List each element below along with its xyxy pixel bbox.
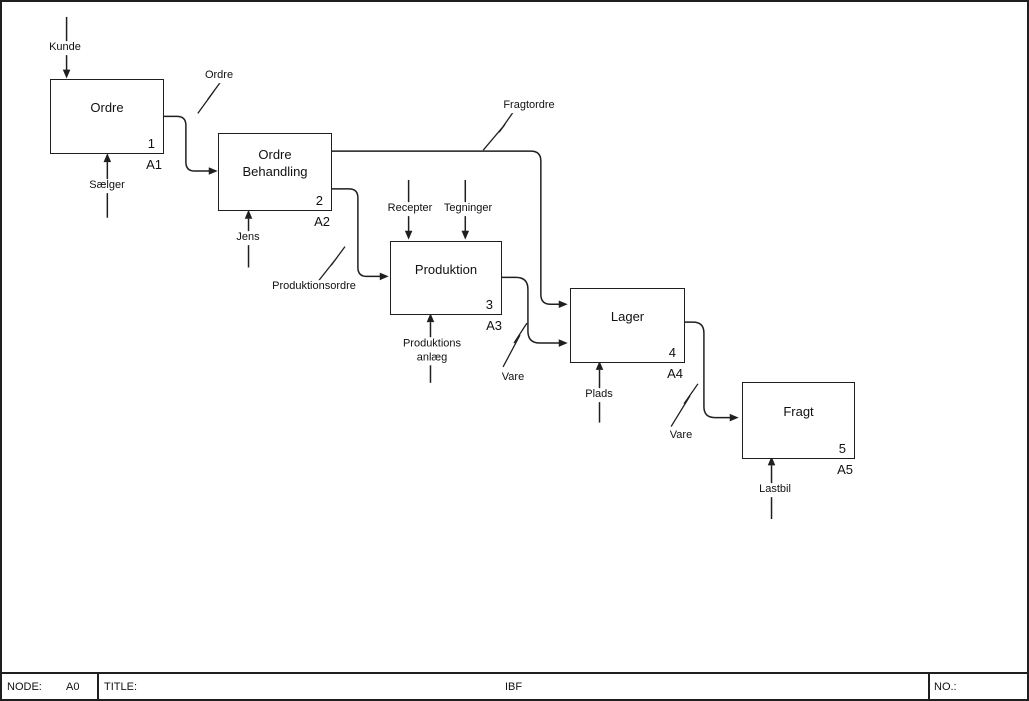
activity-label: Fragt: [783, 404, 813, 421]
activity-label: Ordre: [90, 100, 123, 117]
activity-code-a1: A1: [120, 157, 162, 172]
title-value: IBF: [505, 681, 522, 693]
node-value: A0: [66, 681, 79, 693]
node-label: NODE:: [7, 681, 42, 693]
flow-label-saelger: Sælger: [87, 179, 126, 193]
flow-label-jens: Jens: [234, 231, 261, 245]
activity-number: 1: [148, 136, 155, 151]
activity-label: Ordre Behandling: [232, 147, 318, 181]
activity-box-lager: Lager 4: [570, 288, 685, 363]
activity-code-a2: A2: [288, 214, 330, 229]
squiggle-ordre: [198, 81, 222, 114]
flow-arrow-ordre: [164, 81, 222, 175]
activity-number: 4: [669, 345, 676, 360]
no-label: NO.:: [934, 681, 957, 693]
activity-label: Lager: [611, 309, 644, 326]
activity-number: 5: [839, 441, 846, 456]
squiggle-vare-til-lager: [503, 323, 527, 367]
flow-label-tegninger: Tegninger: [442, 202, 494, 216]
flow-arrow-vare-til-lager: [500, 277, 568, 366]
activity-box-ordre-behandling: Ordre Behandling 2: [218, 133, 332, 211]
squiggle-fragtordre: [483, 112, 513, 150]
flow-label-lastbil: Lastbil: [757, 483, 793, 497]
flow-label-ordre: Ordre: [203, 69, 235, 83]
flow-label-kunde: Kunde: [47, 41, 83, 55]
flow-label-produktionsanlaeg: Produktions anlæg: [392, 337, 472, 365]
flow-label-fragtordre: Fragtordre: [501, 99, 556, 113]
title-label: TITLE:: [104, 681, 137, 693]
idef0-diagram-page: Ordre 1 A1 Ordre Behandling 2 A2 Produkt…: [0, 0, 1029, 701]
flow-label-recepter: Recepter: [386, 202, 435, 216]
flow-label-plads: Plads: [583, 388, 615, 402]
activity-number: 3: [486, 297, 493, 312]
activity-code-a3: A3: [460, 318, 502, 333]
flow-label-produktionsordre: Produktionsordre: [270, 280, 358, 294]
number-cell: NO.:: [928, 674, 1027, 699]
activity-box-produktion: Produktion 3: [390, 241, 502, 315]
activity-box-ordre: Ordre 1: [50, 79, 164, 154]
activity-box-fragt: Fragt 5: [742, 382, 855, 459]
activity-code-a4: A4: [641, 366, 683, 381]
activity-code-a5: A5: [811, 462, 853, 477]
flow-label-vare-til-lager: Vare: [500, 371, 526, 385]
node-cell: NODE: A0: [2, 674, 99, 699]
flow-label-vare-til-fragt: Vare: [668, 429, 694, 443]
squiggle-produktionsordre: [318, 247, 345, 282]
activity-number: 2: [316, 193, 323, 208]
title-cell: TITLE: IBF: [99, 674, 928, 699]
activity-label: Produktion: [415, 262, 477, 279]
title-block: NODE: A0 TITLE: IBF NO.:: [2, 672, 1027, 699]
squiggle-vare-til-fragt: [671, 384, 698, 427]
